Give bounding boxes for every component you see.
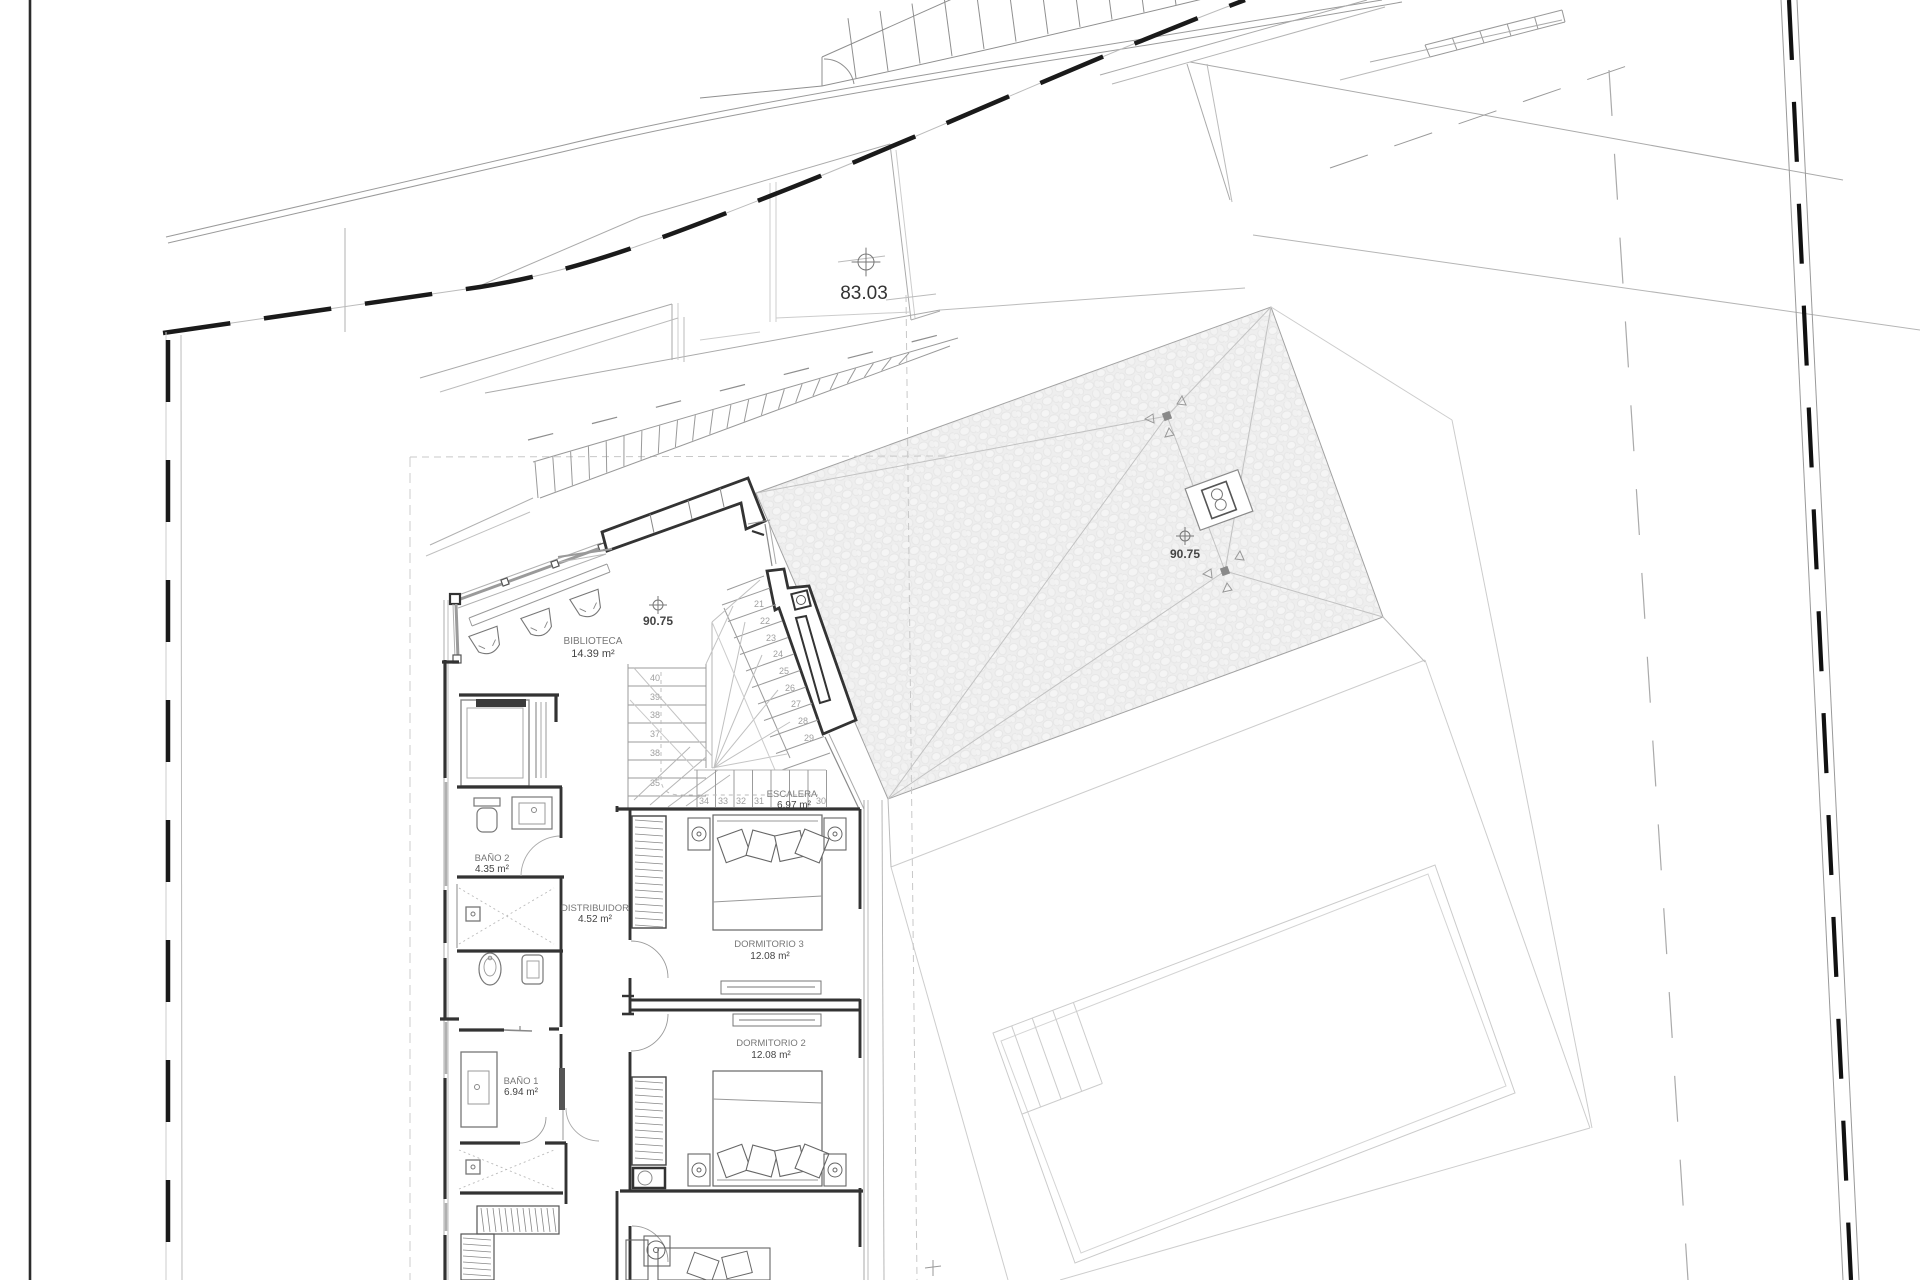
svg-text:38: 38 (650, 710, 660, 720)
svg-text:6.94 m²: 6.94 m² (504, 1087, 539, 1098)
svg-text:4.35 m²: 4.35 m² (475, 864, 510, 875)
svg-text:38: 38 (650, 748, 660, 758)
svg-text:22: 22 (760, 616, 770, 626)
svg-text:BIBLIOTECA: BIBLIOTECA (564, 636, 623, 647)
svg-text:BAÑO 1: BAÑO 1 (504, 1076, 539, 1087)
svg-text:29: 29 (804, 733, 814, 743)
svg-text:ESCALERA: ESCALERA (767, 789, 818, 800)
svg-text:25: 25 (779, 666, 789, 676)
svg-text:40: 40 (650, 673, 660, 683)
svg-text:14.39 m²: 14.39 m² (571, 648, 615, 660)
svg-text:12.08 m²: 12.08 m² (750, 951, 790, 962)
svg-text:90.75: 90.75 (643, 614, 673, 628)
svg-text:27: 27 (791, 699, 801, 709)
svg-text:23: 23 (766, 633, 776, 643)
svg-text:BAÑO 2: BAÑO 2 (475, 853, 510, 864)
svg-text:12.08 m²: 12.08 m² (751, 1050, 791, 1061)
svg-text:90.75: 90.75 (1170, 547, 1200, 561)
svg-text:32: 32 (736, 796, 746, 806)
svg-text:DISTRIBUIDOR: DISTRIBUIDOR (561, 903, 629, 914)
svg-text:34: 34 (699, 796, 709, 806)
svg-text:26: 26 (785, 683, 795, 693)
svg-text:DORMITORIO 2: DORMITORIO 2 (736, 1038, 806, 1049)
svg-text:4.52 m²: 4.52 m² (578, 914, 613, 925)
svg-text:83.03: 83.03 (840, 283, 888, 304)
svg-text:DORMITORIO 3: DORMITORIO 3 (734, 939, 804, 950)
svg-text:33: 33 (718, 796, 728, 806)
svg-text:39: 39 (650, 692, 660, 702)
svg-text:24: 24 (773, 649, 783, 659)
svg-text:31: 31 (754, 796, 764, 806)
svg-text:28: 28 (798, 716, 808, 726)
svg-text:21: 21 (754, 599, 764, 609)
svg-text:30: 30 (816, 796, 826, 806)
